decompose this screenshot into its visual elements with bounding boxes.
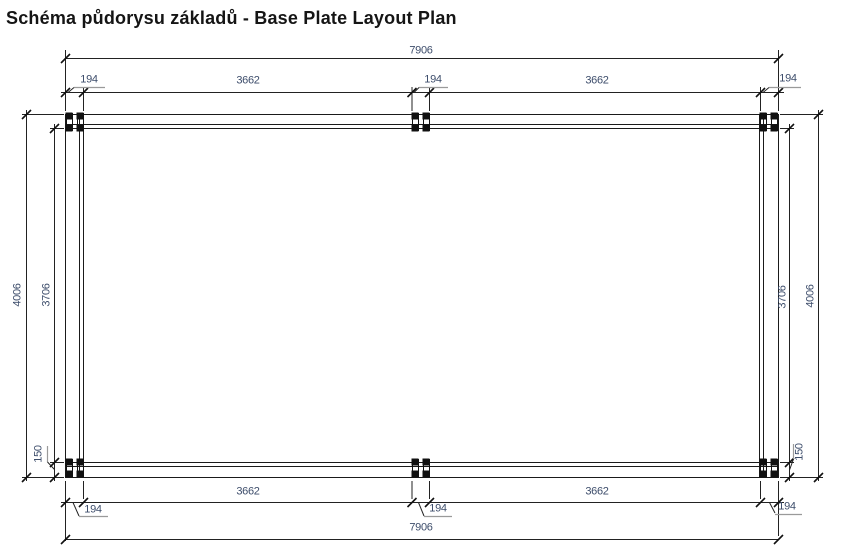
leader-hooks bbox=[48, 88, 794, 517]
dim-bay-width-top-right: 3662 bbox=[585, 76, 608, 87]
dim-bay-width-bottom-left: 3662 bbox=[236, 487, 259, 498]
dim-total-height-left: 4006 bbox=[13, 283, 24, 306]
dim-clear-height-left: 3706 bbox=[42, 283, 53, 306]
dim-total-height-right: 4006 bbox=[806, 284, 817, 307]
post-anchor-bottom-middle bbox=[412, 459, 430, 477]
dim-clear-height-right: 3706 bbox=[778, 285, 789, 308]
dim-post-width-bottom-left: 194 bbox=[84, 505, 101, 516]
dim-total-width-top: 7906 bbox=[409, 46, 432, 57]
dim-bay-width-bottom-right: 3662 bbox=[585, 487, 608, 498]
dim-post-width-bottom-right: 194 bbox=[778, 502, 795, 513]
dim-post-width-top-mid: 194 bbox=[424, 75, 441, 86]
foundation-frame bbox=[66, 115, 779, 478]
post-anchors bbox=[66, 113, 778, 477]
dim-total-width-bottom: 7906 bbox=[409, 523, 432, 534]
leader-underlines bbox=[48, 88, 803, 517]
dim-post-width-top-left: 194 bbox=[80, 75, 97, 86]
post-anchor-bottom-left bbox=[66, 459, 84, 477]
dim-edge-offset-left: 150 bbox=[34, 445, 45, 462]
dim-post-width-bottom-mid: 194 bbox=[429, 504, 446, 515]
dim-edge-offset-right: 150 bbox=[795, 443, 806, 460]
post-anchor-bottom-right bbox=[760, 459, 778, 477]
dim-post-width-top-right: 194 bbox=[779, 74, 796, 85]
base-plate-layout-plan: Schéma půdorysu základů - Base Plate Lay… bbox=[0, 0, 848, 551]
dimension-lines bbox=[22, 50, 823, 541]
dim-bay-width-top-left: 3662 bbox=[236, 76, 259, 87]
